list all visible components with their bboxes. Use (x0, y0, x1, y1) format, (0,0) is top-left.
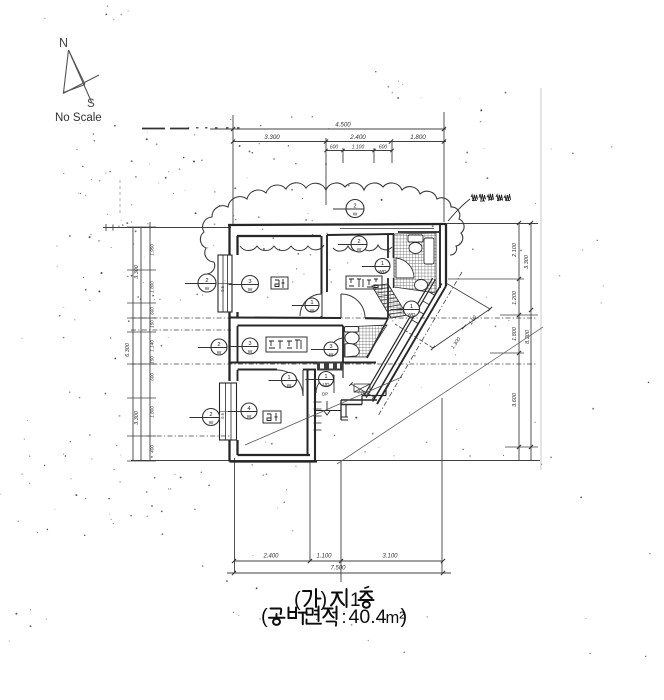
svg-text:1.100: 1.100 (352, 145, 365, 151)
svg-text:WD: WD (379, 269, 388, 275)
svg-text:1: 1 (324, 374, 327, 380)
svg-text:600: 600 (330, 145, 339, 151)
svg-text:W: W (357, 247, 362, 253)
svg-text:40.4: 40.4 (349, 606, 387, 628)
svg-text:N: N (59, 36, 68, 50)
svg-text:2: 2 (205, 278, 208, 284)
svg-text:3.100: 3.100 (382, 554, 398, 560)
svg-text:0.6: 0.6 (220, 285, 225, 291)
svg-text:3.600: 3.600 (512, 392, 518, 407)
svg-text:0.6: 0.6 (220, 412, 225, 418)
svg-text:1.950: 1.950 (150, 244, 155, 256)
svg-text:600: 600 (150, 373, 155, 381)
svg-text:2: 2 (209, 412, 212, 418)
svg-text:150: 150 (150, 320, 155, 328)
svg-text:2.100: 2.100 (512, 242, 518, 258)
svg-text:1.800: 1.800 (150, 406, 155, 418)
svg-text:3: 3 (248, 341, 251, 347)
svg-text:3.300: 3.300 (264, 134, 280, 141)
svg-text:W: W (248, 287, 253, 293)
svg-text:1.140: 1.140 (150, 340, 155, 352)
svg-text:1: 1 (287, 375, 290, 381)
svg-text:W: W (287, 383, 292, 389)
svg-text::: : (342, 607, 347, 627)
svg-text:DP: DP (322, 392, 328, 397)
svg-text:2: 2 (217, 342, 220, 348)
svg-text:(: ( (261, 606, 268, 628)
svg-text:3.300: 3.300 (524, 254, 530, 269)
svg-text:No Scale: No Scale (55, 112, 102, 124)
svg-text:W: W (310, 308, 315, 314)
svg-text:WD: WD (408, 312, 417, 318)
svg-text:1.800: 1.800 (150, 281, 155, 293)
svg-text:4.500: 4.500 (335, 122, 351, 129)
svg-text:1: 1 (410, 304, 413, 310)
svg-text:1.800: 1.800 (410, 134, 426, 141)
svg-text:W: W (353, 211, 358, 217)
svg-text:W: W (205, 286, 210, 292)
svg-text:1.200: 1.200 (512, 290, 518, 305)
svg-text:S: S (87, 98, 95, 110)
svg-text:2.400: 2.400 (349, 134, 366, 141)
svg-text:660: 660 (150, 307, 155, 315)
svg-text:): ) (401, 606, 408, 628)
svg-text:1: 1 (310, 300, 313, 306)
svg-text:2: 2 (357, 239, 360, 245)
svg-text:3.300: 3.300 (134, 410, 140, 425)
svg-text:600: 600 (379, 145, 388, 151)
svg-text:W: W (217, 350, 222, 356)
svg-text:3.300: 3.300 (134, 264, 140, 279)
svg-text:W: W (247, 414, 252, 420)
svg-text:W: W (209, 420, 214, 426)
svg-text:2.400: 2.400 (262, 554, 279, 560)
svg-text:2: 2 (353, 203, 356, 209)
svg-text:3: 3 (329, 344, 332, 350)
svg-text:W: W (329, 352, 334, 358)
svg-text:3: 3 (248, 279, 251, 285)
svg-text:W: W (248, 349, 253, 355)
svg-text:7.500: 7.500 (330, 566, 346, 572)
svg-text:1.100: 1.100 (316, 554, 332, 560)
svg-text:6.300: 6.300 (125, 342, 131, 357)
svg-text:150: 150 (150, 356, 155, 364)
svg-text:400: 400 (150, 445, 155, 453)
svg-text:1.800: 1.800 (512, 326, 518, 341)
svg-text:UD: UD (323, 382, 330, 388)
svg-text:1: 1 (381, 261, 384, 267)
